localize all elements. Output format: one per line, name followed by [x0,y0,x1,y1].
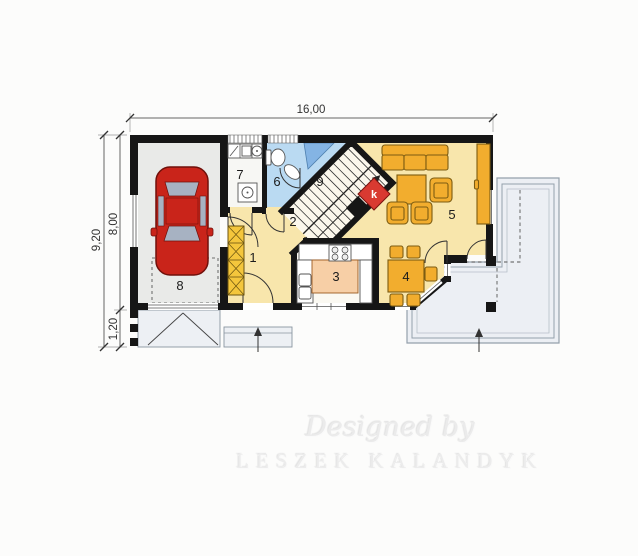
room-label-hall1: 1 [249,250,256,265]
dining-chair [407,294,420,306]
dim-porch-height: 1,20 [108,318,120,340]
dining-chair [390,246,403,258]
car [151,167,213,275]
coffee-table [397,175,426,204]
garage-door-opening [148,303,218,310]
room-label-living: 5 [448,207,455,222]
wall-cabinet [475,144,491,224]
toilet [266,149,285,166]
car-roof [166,198,198,224]
car-mirror [151,228,157,236]
room-label-kitchen: 3 [332,269,339,284]
fireplace-label: k [371,189,378,201]
floor-plan-drawing: k [0,0,638,556]
room-label-stairs: 9 [316,174,323,189]
terrace-post [486,302,496,312]
wardrobe [228,226,244,295]
car-mirror [207,228,213,236]
dim-total-height: 9,20 [91,229,103,251]
sofa [382,145,448,170]
window-top-utility [228,135,262,143]
car-rear-window [165,182,199,196]
dining-chair [390,294,403,306]
porch-left [138,310,292,352]
room-label-utility: 7 [236,167,243,182]
stove [329,245,351,261]
car-side-window [200,196,206,226]
room-label-hall2: 2 [289,214,296,229]
car-side-window [158,196,164,226]
window-top-bathroom [268,135,298,143]
boiler [238,183,257,202]
dining-chair [425,267,437,281]
garage-ramp [138,310,220,347]
washer [242,146,251,156]
room-label-garage: 8 [176,278,183,293]
room-label-dining: 4 [402,269,409,284]
dim-main-height: 8,00 [108,213,120,235]
entrance-door-opening [243,303,273,310]
dining-chair [407,246,420,258]
armchair [411,202,432,224]
armchair [387,202,408,224]
armchair [430,178,452,202]
room-label-bathroom: 6 [273,174,280,189]
window-garage-left [130,195,138,247]
dim-total-width: 16,00 [297,104,326,116]
floor-plan: k [0,0,638,556]
car-windshield [164,226,200,241]
